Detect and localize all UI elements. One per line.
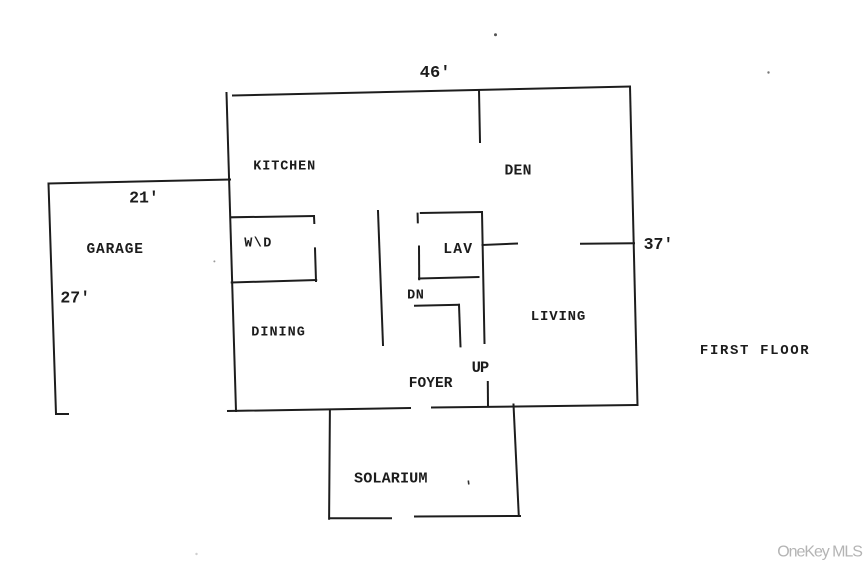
svg-text:DINING: DINING xyxy=(251,325,304,340)
svg-text:W\D: W\D xyxy=(244,236,271,251)
svg-text:DEN: DEN xyxy=(505,164,532,180)
svg-text:FIRST FLOOR: FIRST FLOOR xyxy=(700,343,809,359)
svg-text:FOYER: FOYER xyxy=(409,376,453,392)
svg-text:KITCHEN: KITCHEN xyxy=(253,160,315,175)
svg-text:GARAGE: GARAGE xyxy=(87,242,144,258)
svg-text:DN: DN xyxy=(407,288,424,303)
svg-text:LIVING: LIVING xyxy=(531,309,586,325)
svg-text:21': 21' xyxy=(129,189,159,208)
svg-text:46': 46' xyxy=(420,64,451,83)
svg-text:27': 27' xyxy=(60,288,90,307)
svg-text:OneKey MLS: OneKey MLS xyxy=(777,544,863,561)
svg-text:SOLARIUM: SOLARIUM xyxy=(354,470,428,488)
svg-text:UP: UP xyxy=(472,359,490,377)
svg-text:37': 37' xyxy=(644,235,674,254)
svg-text:LAV: LAV xyxy=(443,242,472,258)
